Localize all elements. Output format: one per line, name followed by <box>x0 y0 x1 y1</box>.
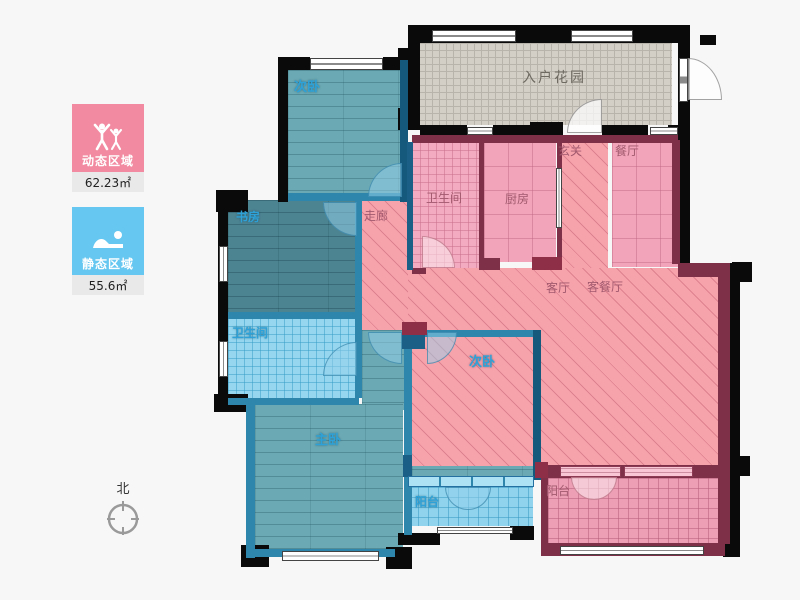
room-label-living: 客厅 <box>546 282 570 294</box>
room-floor-master <box>255 404 403 551</box>
wall-segment <box>533 330 541 480</box>
window <box>560 546 704 555</box>
window <box>556 168 562 228</box>
wall-segment <box>718 268 730 544</box>
room-label-bedroom-mid: 次卧 <box>469 356 495 369</box>
room-label-kitchen: 厨房 <box>505 193 529 205</box>
legend-dynamic-card: 动态区域 <box>72 104 144 172</box>
wall-segment <box>412 135 678 143</box>
window <box>467 127 493 135</box>
legend-static-area: 55.6㎡ <box>72 275 144 295</box>
room-label-bathroom-blue: 卫生间 <box>232 327 268 339</box>
window <box>219 341 228 377</box>
wall-segment <box>510 526 534 540</box>
window <box>437 527 513 534</box>
window <box>432 30 516 42</box>
floorplan-canvas: 动态区域 62.23㎡ 静态区域 55.6㎡ 北 <box>0 0 800 600</box>
compass-icon <box>103 497 143 537</box>
compass: 北 <box>100 478 146 541</box>
room-label-living-dining: 客餐厅 <box>587 281 623 293</box>
room-label-balcony-pink: 阳台 <box>546 485 570 497</box>
room-label-bathroom-pink: 卫生间 <box>426 192 462 204</box>
wall-segment <box>732 262 752 282</box>
wall-segment <box>278 57 288 202</box>
legend-dynamic-area: 62.23㎡ <box>72 172 144 192</box>
wall-segment <box>404 330 412 535</box>
wall-segment <box>228 312 357 319</box>
window <box>310 58 383 70</box>
wall-segment <box>532 257 562 270</box>
door-leaf <box>679 58 688 102</box>
room-floor-foyer <box>558 142 608 268</box>
wall-segment <box>407 142 413 270</box>
legend-static-card: 静态区域 <box>72 207 144 275</box>
wall-segment <box>402 335 425 349</box>
room-label-master: 主卧 <box>315 434 341 447</box>
room-label-study: 书房 <box>236 211 260 223</box>
room-label-balcony-blue: 阳台 <box>415 496 439 508</box>
wall-segment <box>535 462 548 478</box>
wall-segment <box>732 456 750 476</box>
compass-north-label: 北 <box>100 478 146 497</box>
wall-segment <box>402 322 427 335</box>
people-icon <box>91 122 125 152</box>
sliding-window <box>624 466 693 477</box>
wall-segment <box>479 258 500 270</box>
legend-static-label: 静态区域 <box>82 255 134 272</box>
room-label-entry-garden: 入户花园 <box>522 71 586 85</box>
room-label-corridor: 走廊 <box>364 210 388 222</box>
sliding-window <box>408 476 534 487</box>
door-arc-entry <box>688 58 722 100</box>
window <box>571 30 633 42</box>
wall-segment <box>700 35 716 45</box>
room-label-bedroom-top: 次卧 <box>294 81 320 94</box>
wall-segment <box>278 57 310 70</box>
wall-segment <box>672 140 680 264</box>
window <box>219 246 228 282</box>
wall-segment <box>412 268 426 274</box>
window <box>650 127 678 135</box>
sleeping-icon <box>90 227 126 255</box>
room-label-dining: 餐厅 <box>615 145 639 157</box>
wall-segment <box>246 398 255 558</box>
room-floor-dining <box>612 142 678 267</box>
wall-segment <box>730 263 740 557</box>
window <box>282 551 379 561</box>
sliding-window <box>560 466 621 477</box>
legend-dynamic-label: 动态区域 <box>82 152 134 169</box>
wall-segment <box>479 142 484 260</box>
room-label-foyer: 玄关 <box>558 145 582 157</box>
room-floor-living <box>408 268 724 466</box>
wall-segment <box>403 455 412 477</box>
